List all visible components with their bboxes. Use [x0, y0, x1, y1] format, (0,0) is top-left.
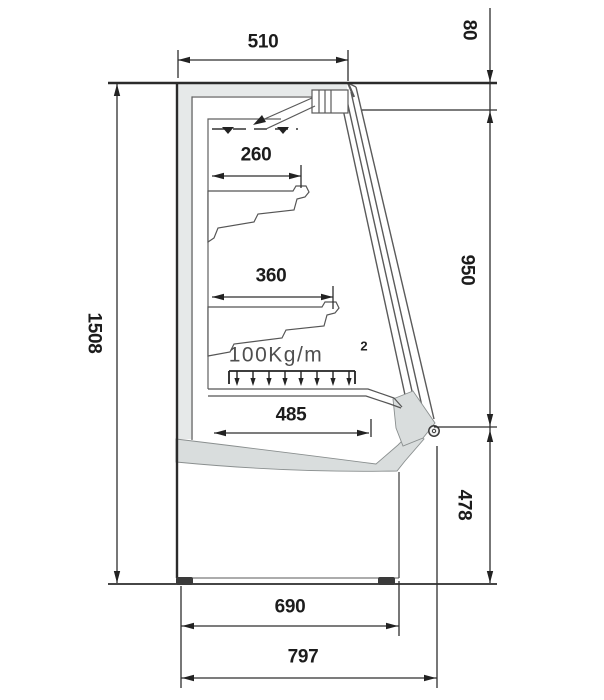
air-flow-triangle [277, 127, 289, 134]
cabinet-cross-section-drawing: 100Kg/m 2 [0, 0, 604, 700]
load-arrows [234, 378, 351, 386]
foot-left [176, 577, 193, 585]
air-duct [253, 98, 315, 129]
dim-1508-label: 1508 [84, 312, 105, 353]
dim-797-label: 797 [288, 647, 319, 668]
air-curtain-line [212, 127, 298, 134]
dim-510-label: 510 [248, 32, 279, 53]
shelf-1 [208, 186, 309, 242]
foot-right [378, 577, 395, 585]
load-rating-superscript: 2 [360, 339, 367, 354]
dim-950-label: 950 [457, 255, 478, 286]
dim-485-label: 485 [276, 405, 308, 426]
load-rating-label: 100Kg/m [229, 344, 324, 367]
insulation-fill [177, 84, 347, 439]
air-discharge-arrow [253, 115, 266, 125]
dim-80-label: 80 [459, 20, 480, 41]
drawing-canvas: 100Kg/m 2 [0, 0, 604, 700]
dimension-arrowheads [114, 57, 493, 681]
front-band-fill [176, 432, 424, 471]
load-symbol [229, 371, 355, 386]
dim-478-label: 478 [454, 490, 475, 521]
outer-shell [108, 83, 497, 584]
dim-260-label: 260 [241, 145, 272, 166]
dim-690-label: 690 [275, 597, 306, 618]
air-flow-triangle [222, 127, 234, 134]
dim-360-label: 360 [256, 266, 287, 287]
